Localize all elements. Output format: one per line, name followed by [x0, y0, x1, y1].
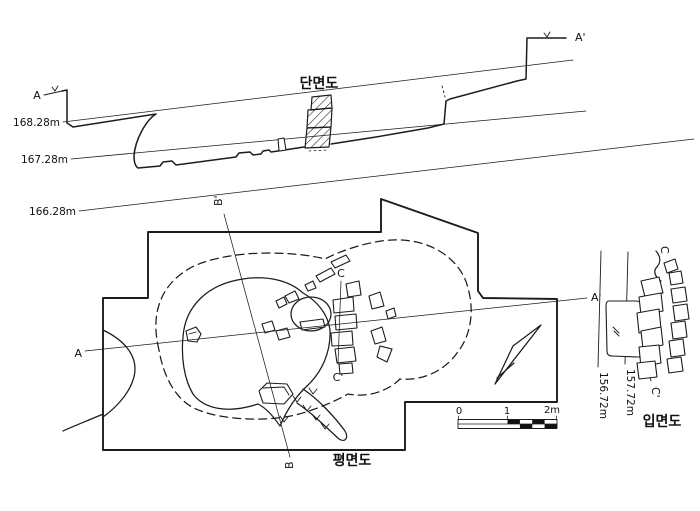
datum-label-167: 167.28m — [21, 154, 68, 166]
scale-tick-2m: 2m — [544, 405, 560, 416]
section-a-leader — [44, 91, 62, 95]
plan-label-b: B — [283, 461, 296, 469]
section-label-a-prime: A' — [575, 31, 586, 44]
scale-bar: 0 1 2m — [456, 405, 560, 429]
datum-label-168: 168.28m — [13, 117, 60, 129]
plan-pit-upper-edge-dashed — [156, 240, 471, 419]
plan-pit-floor-outline — [182, 278, 330, 426]
scale-cell — [520, 424, 532, 429]
scale-ticks — [459, 416, 557, 420]
section-a-tick — [52, 86, 58, 91]
section-ground-profile-right — [331, 38, 566, 144]
north-arrow-icon — [495, 325, 541, 384]
plan-label-c: C — [337, 267, 345, 280]
drawing-canvas: 168.28m 167.28m 166.28m A A' 단면도 — [0, 0, 700, 511]
section-label-a: A — [33, 89, 41, 102]
section-a-prime-tick — [544, 32, 550, 37]
elevation-label-c-prime: C' — [649, 387, 662, 398]
scale-cell — [545, 424, 557, 429]
scale-tick-1: 1 — [504, 406, 510, 417]
plan-title: 평면도 — [333, 452, 372, 469]
elevation-c-profile — [655, 251, 661, 281]
elevation-label-c: C — [658, 246, 671, 254]
section-hatched-stone-bottom — [305, 127, 331, 148]
plan-contour-curve — [103, 330, 135, 417]
plan-stones — [186, 255, 350, 342]
cross-section-view: 168.28m 167.28m 166.28m A A' 단면도 — [13, 31, 694, 218]
elevation-datum-label-156: 156.72m — [597, 372, 609, 419]
scale-cell — [508, 420, 520, 425]
plan-label-c-prime: C' — [333, 371, 344, 384]
elevation-title: 입면도 — [643, 413, 682, 430]
section-title: 단면도 — [300, 75, 339, 92]
section-dashed-stub — [442, 86, 445, 97]
plan-channel-outline — [297, 389, 347, 440]
section-small-stone — [278, 138, 286, 151]
elevation-datum-label-157: 157.72m — [624, 369, 636, 416]
plan-contour-tail — [63, 414, 103, 431]
plan-label-a: A — [74, 347, 82, 360]
elevation-datum-line-156 — [598, 251, 601, 367]
scale-tick-0: 0 — [456, 406, 462, 417]
plan-label-b-prime: B' — [212, 195, 225, 206]
section-hatched-stone-middle — [307, 108, 332, 128]
scale-cell — [532, 420, 544, 425]
elevation-view: C C' 156.72m 157.72m 입면도 — [597, 246, 689, 430]
archaeological-drawing-sheet: 168.28m 167.28m 166.28m A A' 단면도 — [0, 0, 700, 511]
elevation-stones — [606, 259, 689, 379]
section-stone-base-dots — [309, 150, 328, 151]
datum-label-166: 166.28m — [29, 206, 76, 218]
